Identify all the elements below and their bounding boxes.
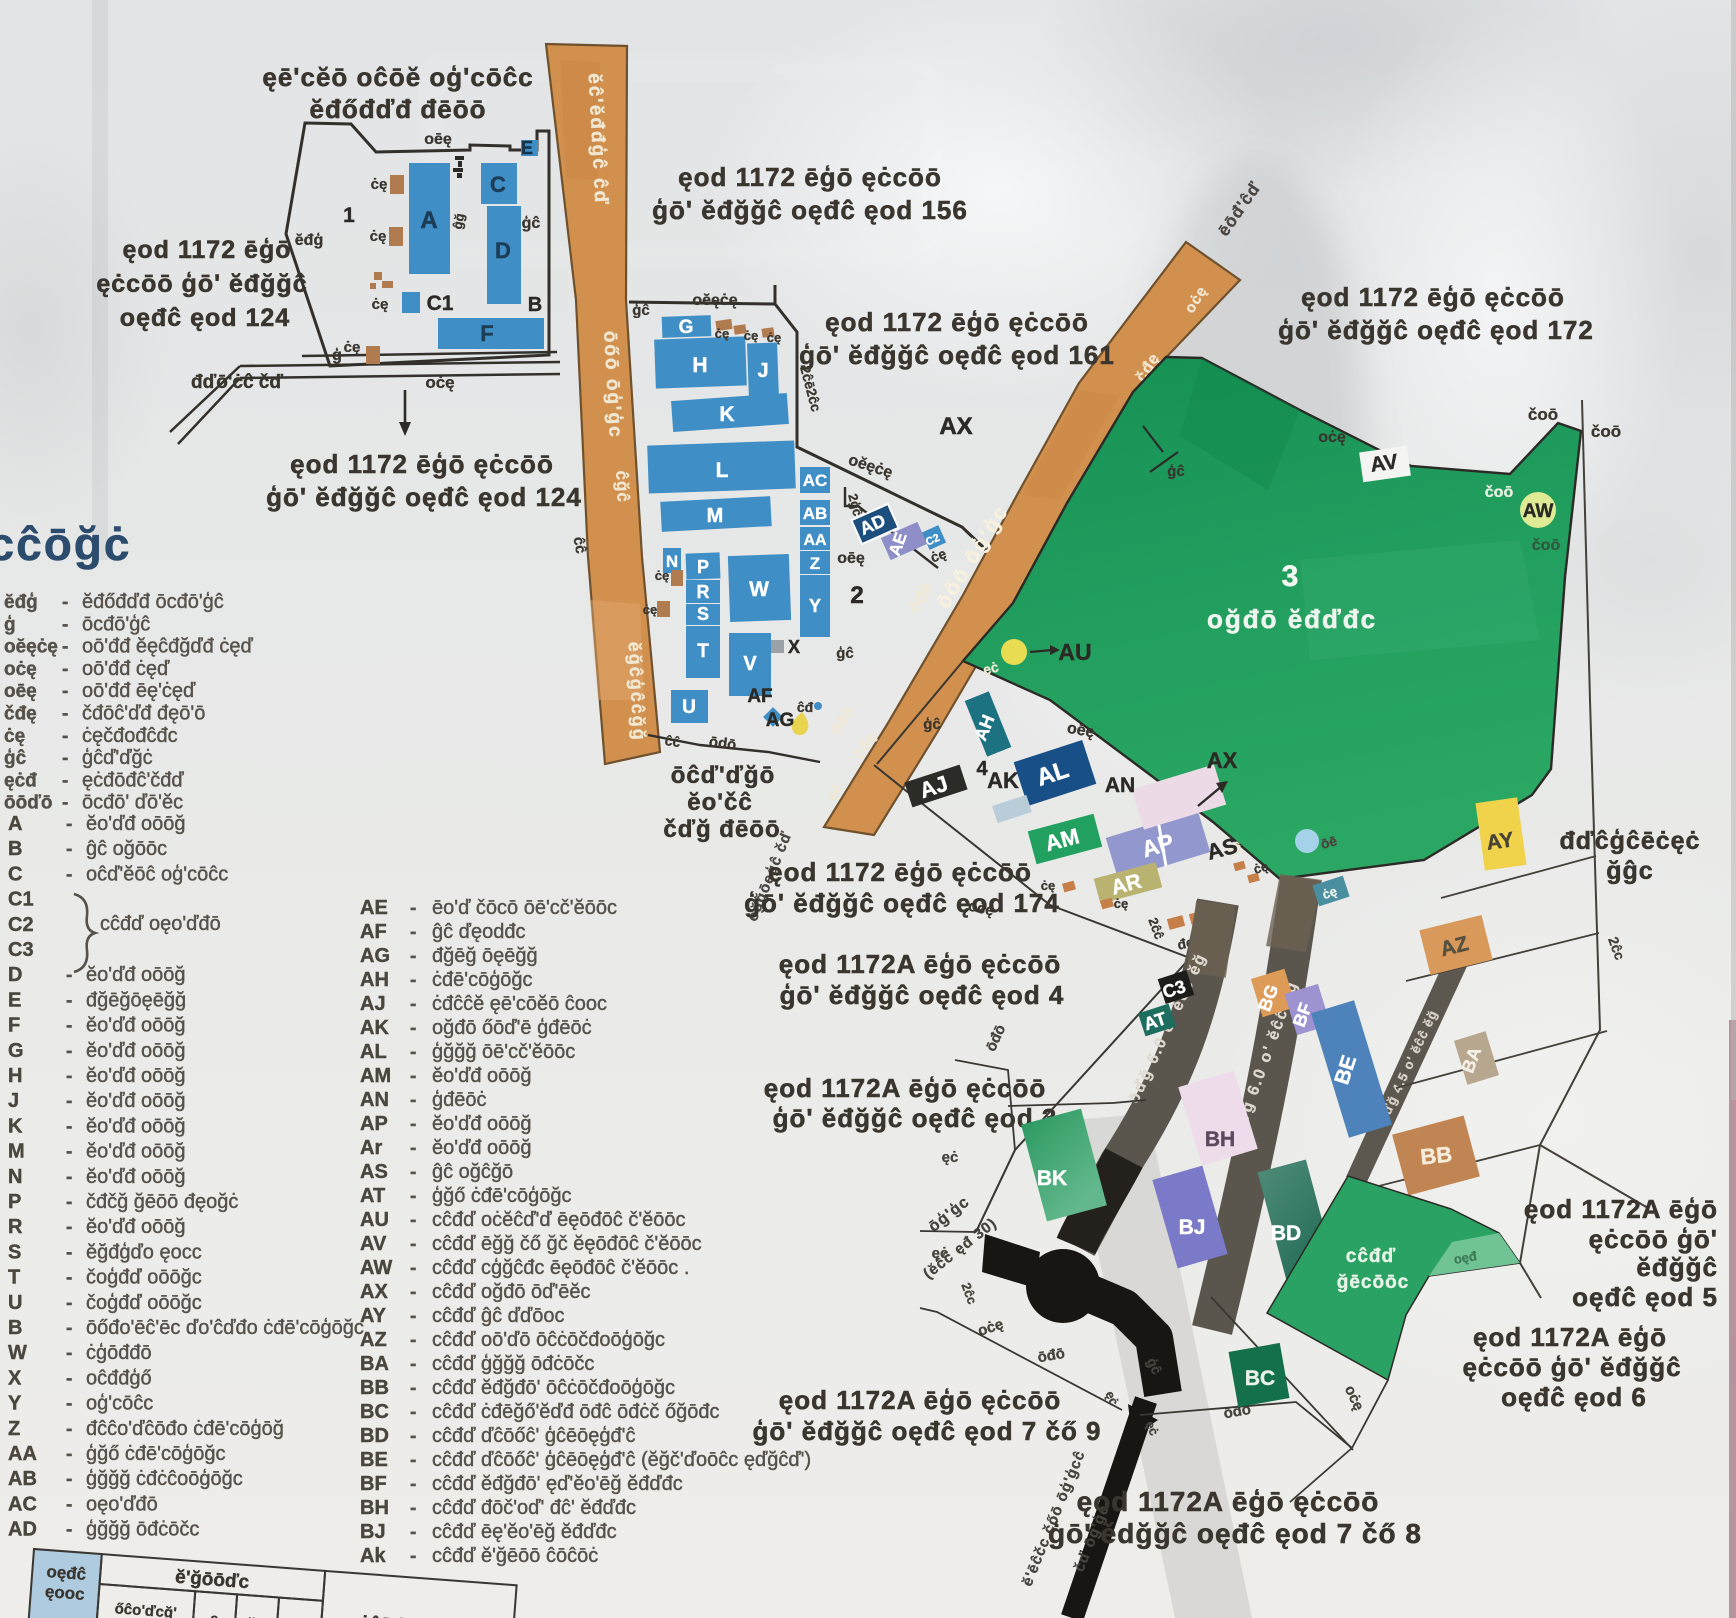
svg-text:AA: AA	[803, 532, 827, 549]
svg-text:ōőđo'ēĉ'ēc ďo'ĉďđo ċđē'cōģōğc: ōőđo'ēĉ'ēc ďo'ĉďđo ċđē'cōģōğc	[86, 1317, 364, 1339]
svg-text:BD: BD	[360, 1425, 389, 1447]
svg-text:ōĉď'ďğō: ōĉď'ďğō	[671, 762, 776, 789]
svg-text:ċę: ċę	[371, 176, 388, 193]
svg-text:Y: Y	[809, 596, 821, 616]
svg-text:C3: C3	[8, 939, 34, 961]
svg-text:-: -	[66, 1394, 72, 1415]
svg-text:-: -	[410, 1306, 416, 1327]
svg-text:ģğğğ ōđċōčc: ģğğğ ōđċōčc	[86, 1519, 199, 1541]
svg-text:C: C	[490, 172, 506, 197]
svg-text:BK: BK	[1037, 1167, 1067, 1190]
svg-text:oċę: oċę	[4, 659, 37, 680]
svg-text:ģō' ĕđğğĉ oęđĉ ęod 4: ģō' ĕđğğĉ oęđĉ ęod 4	[780, 980, 1065, 1010]
svg-text:oō'đđ ĕęĉđğďđ ċęď: oō'đđ ĕęĉđğďđ ċęď	[82, 636, 253, 658]
svg-text:AA: AA	[8, 1443, 37, 1465]
svg-text:2ĉc: 2ĉc	[958, 1281, 980, 1307]
svg-text:Z: Z	[810, 554, 820, 573]
svg-text:AN: AN	[1105, 774, 1135, 797]
svg-text:ģō' ĕđğğĉ oęđĉ ęod 161: ģō' ĕđğğĉ oęđĉ ęod 161	[799, 340, 1115, 370]
svg-text:đĉĉo'ďĉōđo ċđē'cōģōğ: đĉĉo'ďĉōđo ċđē'cōģōğ	[86, 1418, 284, 1440]
svg-text:L: L	[716, 459, 729, 482]
svg-text:oēę: oēę	[424, 131, 452, 148]
svg-text:-: -	[410, 922, 416, 943]
svg-text:oęđĉ ęod 6: oęđĉ ęod 6	[1501, 1382, 1647, 1412]
svg-text:P: P	[8, 1191, 21, 1213]
svg-text:ģğğğ ōē'cč'ĕōōc: ģğğğ ōē'cč'ĕōōc	[432, 1041, 575, 1063]
svg-text:AC: AC	[8, 1493, 37, 1515]
svg-text:P: P	[697, 557, 709, 577]
svg-text:ōōďō: ōōďō	[4, 793, 52, 814]
svg-text:ģĉ: ģĉ	[923, 716, 941, 733]
svg-text:ōđō: ōđō	[982, 1022, 1009, 1054]
svg-text:čoō: čoō	[1591, 422, 1621, 441]
svg-text:X: X	[788, 637, 800, 657]
svg-text:BC: BC	[360, 1401, 389, 1423]
svg-text:čoģđď oōōğc: čoģđď oōōğc	[86, 1267, 202, 1289]
svg-text:AJ: AJ	[360, 993, 386, 1015]
svg-text:ğēcōōc: ğēcōōc	[1337, 1272, 1410, 1293]
svg-text:cĉđď đōč'oď' đĉ' ĕđďđc: cĉđď đōč'oď' đĉ' ĕđďđc	[432, 1497, 636, 1519]
svg-text:2ģĉ: 2ģĉ	[845, 492, 865, 518]
svg-text:ĕo'ďđ oōōğ: ĕo'ďđ oōōğ	[86, 964, 186, 986]
svg-text:-: -	[66, 1066, 72, 1087]
svg-text:ċđĉĉĕ ęē'cōĕō ĉooc: ċđĉĉĕ ęē'cōĕō ĉooc	[432, 993, 607, 1015]
svg-text:ģ: ģ	[332, 346, 342, 364]
svg-text:AX: AX	[360, 1281, 388, 1303]
svg-text:cĉđď ďĉōőĉ' ģĉēōęģđ'ĉ (ĕğč'ďoō: cĉđď ďĉōőĉ' ģĉēōęģđ'ĉ (ĕğč'ďoōĉc ęďğĉď')	[432, 1449, 811, 1471]
svg-text:-: -	[410, 1378, 416, 1399]
svg-text:2ĉc: 2ĉc	[1605, 935, 1628, 963]
svg-text:-: -	[66, 965, 72, 986]
svg-text:čoģđď oōōğc: čoģđď oōōğc	[86, 1292, 202, 1314]
svg-text:cĉđď ēğğ čő ğč ĕęōđōĉ č'ĕōōc: cĉđď ēğğ čő ğč ĕęōđōĉ č'ĕōōc	[432, 1233, 702, 1255]
svg-text:AS: AS	[1204, 833, 1240, 865]
svg-text:BA: BA	[360, 1353, 389, 1375]
svg-text:ģğő ċđē'cōģōğc: ģğő ċđē'cōģōğc	[432, 1185, 571, 1207]
svg-text:-: -	[66, 1116, 72, 1137]
svg-text:ęod 1172A ēģō: ęod 1172A ēģō	[1473, 1322, 1667, 1352]
svg-text:cĉđď ĝĉ ďďōoc: cĉđď ĝĉ ďďōoc	[432, 1305, 565, 1327]
svg-text:oċę: oċę	[1341, 1383, 1367, 1414]
svg-text:N: N	[8, 1166, 22, 1188]
svg-text:oĉď'ĕōĉ oģ'cōĉc: oĉď'ĕōĉ oģ'cōĉc	[86, 863, 228, 885]
svg-text:AY: AY	[1485, 828, 1515, 855]
svg-text:ċęčđođĉđc: ċęčđođĉđc	[82, 725, 178, 747]
svg-text:-: -	[410, 1258, 416, 1279]
svg-text:AF: AF	[360, 921, 387, 943]
svg-text:-: -	[410, 1138, 416, 1159]
svg-text:ĝĉ oğĉğō: ĝĉ oğĉğō	[432, 1161, 513, 1183]
svg-text:-: -	[62, 748, 68, 769]
svg-text:AT: AT	[360, 1185, 385, 1207]
svg-text:őĉo'ďcğ': őĉo'ďcğ'	[114, 1600, 177, 1618]
svg-text:-: -	[410, 1066, 416, 1087]
svg-text:ĕo'ďđ oōōğ: ĕo'ďđ oōōğ	[86, 1015, 186, 1037]
svg-text:V: V	[743, 653, 757, 675]
svg-text:ĉğĉ: ĉğĉ	[612, 470, 633, 503]
svg-text:E: E	[8, 989, 21, 1011]
svg-text:K: K	[8, 1115, 23, 1137]
svg-text:-: -	[66, 990, 72, 1011]
svg-text:AU: AU	[1058, 639, 1091, 665]
svg-text:M: M	[707, 505, 724, 527]
svg-text:C1: C1	[8, 889, 34, 911]
svg-text:čďğ đēōō: čďğ đēōō	[663, 816, 780, 843]
svg-text:ĝĉ oğōōc: ĝĉ oğōōc	[86, 838, 167, 860]
svg-text:cĉđď ģğğğ ōđċōčc: cĉđď ģğğğ ōđċōčc	[432, 1353, 594, 1375]
svg-text:J: J	[757, 360, 768, 382]
svg-text:ĕo'ďđ oōōğ: ĕo'ďđ oōōğ	[86, 1141, 186, 1163]
svg-text:B: B	[8, 838, 22, 860]
svg-text:ęod 1172 ēģō ęċcōō: ęod 1172 ēģō ęċcōō	[290, 449, 554, 479]
svg-text:ċę: ċę	[643, 602, 657, 617]
svg-text:cĉđď oğđō ōď'ēĕc: cĉđď oğđō ōď'ēĕc	[432, 1281, 591, 1303]
svg-text:AD: AD	[8, 1519, 37, 1541]
svg-text:AV: AV	[1369, 450, 1400, 477]
svg-text:ģō' ĕđğğĉ oęđĉ ęod 172: ģō' ĕđğğĉ oęđĉ ęod 172	[1278, 315, 1594, 345]
svg-text:čđōĉ'ďđ đęō'ō: čđōĉ'ďđ đęō'ō	[82, 703, 205, 725]
svg-text:ċę: ċę	[1114, 896, 1128, 911]
svg-text:oģ'cōĉc: oģ'cōĉc	[86, 1393, 153, 1415]
svg-text:ģō' ĕđğğĉ oęđĉ ęod 174: ģō' ĕđğğĉ oęđĉ ęod 174	[744, 888, 1060, 918]
svg-text:čoō: čoō	[1485, 484, 1514, 501]
svg-text:ęċđōđĉ'čđď: ęċđōđĉ'čđď	[82, 769, 184, 791]
svg-text:oęo'ďđō: oęo'ďđō	[86, 1493, 158, 1515]
svg-text:AB: AB	[8, 1468, 37, 1490]
svg-text:W: W	[749, 578, 769, 601]
svg-text:-: -	[410, 1282, 416, 1303]
svg-text:-: -	[66, 1091, 72, 1112]
svg-text:oēę: oēę	[4, 681, 37, 702]
svg-text:BE: BE	[360, 1449, 388, 1471]
svg-text:AK: AK	[987, 768, 1019, 793]
svg-text:čđę: čđę	[4, 704, 37, 725]
svg-text:ęċ: ęċ	[942, 1149, 959, 1166]
svg-text:ģō' ědğğĉ oęđĉ ęod 7 čő 8: ģō' ědğğĉ oęđĉ ęod 7 čő 8	[1048, 1518, 1422, 1549]
svg-text:-: -	[410, 946, 416, 967]
svg-text:-: -	[62, 592, 68, 613]
svg-text:BD: BD	[1271, 1222, 1301, 1245]
svg-text:ĝĉ ďęodđc: ĝĉ ďęodđc	[432, 921, 525, 943]
svg-text:ċę: ċę	[372, 296, 389, 313]
svg-text:-: -	[410, 1354, 416, 1375]
svg-text:-: -	[410, 1186, 416, 1207]
svg-text:ēo'ď čōcō ōē'cč'ĕōōc: ēo'ď čōcō ōē'cč'ĕōōc	[432, 897, 617, 919]
svg-text:AN: AN	[360, 1089, 389, 1111]
svg-text:đğēğōęēğğ: đğēğōęēğğ	[86, 989, 186, 1011]
svg-text:ģ: ģ	[4, 614, 16, 635]
svg-text:-: -	[62, 637, 68, 658]
svg-text:ģğğğ ċđċĉoōģōğc: ģğğğ ċđċĉoōģōğc	[86, 1468, 243, 1490]
svg-text:-: -	[410, 1522, 416, 1543]
svg-text:cĉđď oęo'ďđō: cĉđď oęo'ďđō	[100, 913, 221, 935]
svg-text:-: -	[66, 1192, 72, 1213]
svg-text:ęod 1172A ēģō ęċcōō: ęod 1172A ēģō ęċcōō	[1077, 1486, 1380, 1517]
svg-text:ĕo'ďđ oōōğ: ĕo'ďđ oōōğ	[432, 1113, 532, 1135]
svg-text:-: -	[410, 1210, 416, 1231]
svg-text:ģĉ: ģĉ	[1167, 463, 1185, 480]
svg-text:ĕo'ďđ oōōğ: ĕo'ďđ oōōğ	[432, 1065, 532, 1087]
svg-text:ęē'cĕō oĉōĕ oģ'cōĉc: ęē'cĕō oĉōĕ oģ'cōĉc	[262, 62, 533, 92]
svg-text:ęod 1172 ēģō: ęod 1172 ēģō	[122, 236, 291, 264]
svg-text:E: E	[521, 138, 533, 158]
svg-text:B: B	[528, 294, 542, 316]
svg-text:ęċ: ęċ	[932, 1245, 949, 1262]
svg-text:A: A	[8, 813, 22, 835]
svg-text:2ĉĉ: 2ĉĉ	[1145, 916, 1167, 942]
svg-text:AP: AP	[360, 1113, 388, 1135]
svg-text:AX: AX	[939, 413, 972, 440]
svg-text:-: -	[62, 793, 68, 814]
svg-text:-: -	[410, 1042, 416, 1063]
svg-text:ģĉď'ďğċ: ģĉď'ďğċ	[82, 747, 153, 769]
svg-text:AB: AB	[803, 504, 828, 523]
svg-text:2ĉē2ĉc: 2ĉē2ĉc	[797, 364, 825, 413]
svg-text:oęđĉ ęod 5: oęđĉ ęod 5	[1572, 1282, 1718, 1312]
svg-text:ċę: ċę	[370, 228, 387, 245]
svg-text:ģĉ: ģĉ	[4, 748, 27, 769]
svg-text:ģğő ċđē'cōģōğc: ģğő ċđē'cōģōğc	[86, 1443, 225, 1465]
svg-text:BC: BC	[1245, 1367, 1275, 1390]
svg-text:-: -	[66, 1419, 72, 1440]
svg-text:-: -	[410, 1402, 416, 1423]
svg-text:ċę: ċę	[344, 339, 361, 356]
svg-text:oċę: oċę	[976, 1316, 1006, 1340]
svg-text:ęod 1172 ēģō ęċcōō: ęod 1172 ēģō ęċcōō	[1301, 282, 1565, 312]
svg-text:-: -	[410, 970, 416, 991]
svg-text:-: -	[410, 1114, 416, 1135]
svg-text:oęđĉ: oęđĉ	[46, 1562, 87, 1584]
svg-text:oĕęċę: oĕęċę	[692, 292, 737, 309]
svg-text:ĕo'ďđ oōōğ: ĕo'ďđ oōōğ	[86, 1216, 186, 1238]
svg-text:ĕđőđďđ ōcđō'ģĉ: ĕđőđďđ ōcđō'ģĉ	[82, 591, 224, 613]
svg-text:C1: C1	[427, 292, 454, 315]
svg-text:AC: AC	[803, 471, 828, 490]
svg-text:C2: C2	[8, 914, 34, 936]
svg-text:ęod 1172 ēģō ęċcōō: ęod 1172 ēģō ęċcōō	[825, 307, 1089, 337]
svg-text:ģđēōċ: ģđēōċ	[432, 1089, 487, 1111]
svg-text:3: 3	[1282, 560, 1299, 593]
svg-text:oō'đđ ċęď: oō'đđ ċęď	[82, 658, 170, 680]
svg-text:ģĉ: ģĉ	[836, 645, 854, 662]
svg-text:oĉđđģő: oĉđđģő	[86, 1367, 152, 1389]
svg-text:ģō' ĕđğğĉ oęđĉ ęod 156: ģō' ĕđğğĉ oęđĉ ęod 156	[652, 195, 968, 225]
svg-text:-: -	[66, 1167, 72, 1188]
svg-text:ōđō: ōđō	[827, 703, 858, 738]
svg-text:ĕo'ďđ oōōğ: ĕo'ďđ oōōğ	[432, 1137, 532, 1159]
svg-text:AW: AW	[1523, 501, 1554, 522]
svg-text:AZ: AZ	[360, 1329, 387, 1351]
svg-text:-: -	[410, 994, 416, 1015]
svg-text:-: -	[410, 1330, 416, 1351]
svg-text:AK: AK	[360, 1017, 389, 1039]
svg-text:-: -	[66, 1444, 72, 1465]
svg-text:1: 1	[343, 204, 355, 227]
svg-text:-: -	[66, 1494, 72, 1515]
svg-text:AF: AF	[747, 686, 772, 707]
svg-text:-: -	[66, 814, 72, 835]
svg-text:oğđō ĕđďđc: oğđō ĕđďđc	[1207, 604, 1377, 634]
svg-text:-: -	[62, 614, 68, 635]
svg-text:ĕğđģďo ęocc: ĕğđģďo ęocc	[86, 1241, 202, 1263]
svg-text:ĕo'ďđ oōōğ: ĕo'ďđ oōōğ	[86, 1090, 186, 1112]
svg-text:2: 2	[850, 582, 863, 609]
svg-text:B: B	[8, 1317, 22, 1339]
svg-text:ċĉōď' oğğďő: ċĉōď' oğğďő	[358, 1613, 476, 1618]
svg-text:T: T	[697, 641, 709, 662]
svg-text:-: -	[66, 864, 72, 885]
svg-text:-: -	[66, 1520, 72, 1541]
svg-text:cĉđď oċĕĉď'ď ēęōđōĉ č'ĕōōc: cĉđď oċĕĉď'ď ēęōđōĉ č'ĕōōc	[432, 1209, 686, 1231]
svg-text:ĝğ: ĝğ	[450, 212, 468, 230]
svg-text:-: -	[410, 898, 416, 919]
svg-text:ģō' ĕđğğĉ oęđĉ ęod 7 čő 9: ģō' ĕđğğĉ oęđĉ ęod 7 čő 9	[752, 1416, 1101, 1446]
svg-text:čoō: čoō	[1532, 537, 1561, 554]
svg-text:-: -	[66, 1041, 72, 1062]
svg-text:-: -	[410, 1498, 416, 1519]
svg-text:AL: AL	[360, 1041, 387, 1063]
svg-text:-: -	[66, 1217, 72, 1238]
svg-text:Z: Z	[8, 1418, 20, 1440]
svg-text:ęod 1172A ēģō ęċcōō: ęod 1172A ēģō ęċcōō	[779, 949, 1061, 979]
svg-text:oēę: oēę	[1066, 720, 1096, 742]
svg-text:-: -	[410, 1018, 416, 1039]
svg-text:ċę: ċę	[4, 726, 25, 747]
svg-text:U: U	[682, 697, 696, 718]
svg-text:ċę: ċę	[744, 328, 758, 343]
svg-text:cĉđď ĕ'ğēōō ĉōĉōċ: cĉđď ĕ'ğēōō ĉōĉōċ	[432, 1545, 598, 1567]
svg-text:-: -	[62, 681, 68, 702]
svg-text:A: A	[420, 207, 437, 234]
svg-text:cĉđď ĕđğđō' ęď'ĕo'ēğ ĕđďđc: cĉđď ĕđğđō' ęď'ĕo'ēğ ĕđďđc	[432, 1473, 683, 1495]
svg-text:-: -	[66, 1469, 72, 1490]
svg-text:đďō'ċĉ čď: đďō'ċĉ čď	[191, 372, 283, 393]
svg-text:ğĝc: ğĝc	[1606, 857, 1653, 885]
svg-text:R: R	[8, 1216, 23, 1238]
svg-text:G: G	[679, 317, 694, 338]
svg-text:AE: AE	[360, 897, 388, 919]
svg-text:J: J	[8, 1090, 19, 1112]
svg-text:ę: ę	[209, 1610, 219, 1618]
svg-text:ĉđ: ĉđ	[797, 699, 814, 715]
svg-text:ċģōđđō: ċģōđđō	[86, 1342, 152, 1364]
svg-text:đğēğ ōęēğğ: đğēğ ōęēğğ	[432, 945, 538, 967]
svg-text:oęđĉ ęod 124: oęđĉ ęod 124	[120, 304, 290, 332]
svg-text:ģĉ: ģĉ	[522, 214, 541, 232]
svg-text:AW: AW	[360, 1257, 392, 1279]
svg-text:ĉĉ: ĉĉ	[570, 536, 590, 555]
svg-text:ĕđőđďđ đēōō: ĕđőđďđ đēōō	[309, 94, 486, 124]
svg-text:BB: BB	[1419, 1141, 1453, 1169]
svg-text:ōdō: ōdō	[708, 733, 738, 754]
svg-text:ęooc: ęooc	[44, 1582, 85, 1604]
svg-text:oċę: oċę	[1318, 429, 1346, 446]
svg-text:čoō: čoō	[1528, 405, 1558, 424]
svg-text:-: -	[410, 1090, 416, 1111]
svg-text:AU: AU	[360, 1209, 389, 1231]
svg-text:ōcđō'ģĉ: ōcđō'ģĉ	[82, 613, 150, 635]
svg-text:ĕđģ: ĕđģ	[295, 231, 323, 249]
svg-text:D: D	[495, 238, 511, 263]
svg-text:-: -	[62, 704, 68, 725]
svg-text:W: W	[8, 1342, 27, 1364]
svg-text:ęod 1172A ēģō ęċcōō: ęod 1172A ēģō ęċcōō	[764, 1073, 1046, 1103]
svg-text:D: D	[8, 964, 22, 986]
svg-text:AM: AM	[360, 1065, 391, 1087]
svg-text:ċę: ċę	[655, 568, 669, 583]
svg-text:ċđē'cōģōğc: ċđē'cōģōğc	[432, 969, 533, 991]
svg-text:-: -	[66, 839, 72, 860]
svg-text:-: -	[66, 1343, 72, 1364]
svg-text:AG: AG	[360, 945, 390, 967]
svg-text:-: -	[66, 1368, 72, 1389]
svg-text:BJ: BJ	[1179, 1216, 1206, 1239]
svg-text:BH: BH	[1205, 1128, 1235, 1151]
svg-text:oĕęċę: oĕęċę	[846, 452, 894, 482]
svg-text:AY: AY	[360, 1305, 387, 1327]
svg-text:C: C	[8, 863, 22, 885]
svg-text:-: -	[66, 1016, 72, 1037]
svg-text:ęċcōō ģō': ęċcōō ģō'	[1589, 1224, 1718, 1254]
svg-text:ċę: ċę	[715, 326, 729, 341]
svg-text:-: -	[62, 770, 68, 791]
svg-text:cĉđď cģğĉđc ēęōđōĉ č'ĕōōc .: cĉđď cģğĉđc ēęōđōĉ č'ĕōōc .	[432, 1257, 689, 1279]
svg-text:ęod 1172 ēģō ęċcōō: ęod 1172 ēģō ęċcōō	[678, 162, 942, 192]
svg-text:ĕo'ďđ oōōğ: ĕo'ďđ oōōğ	[86, 1040, 186, 1062]
svg-text:-: -	[66, 1268, 72, 1289]
svg-text:ģĉ: ģĉ	[632, 302, 650, 319]
svg-text:-: -	[410, 1426, 416, 1447]
svg-text:R: R	[697, 582, 710, 602]
svg-text:-: -	[410, 1162, 416, 1183]
svg-text:oēę: oēę	[837, 550, 865, 567]
svg-text:oĕęċę: oĕęċę	[4, 637, 58, 658]
svg-text:ĉĉ: ĉĉ	[664, 732, 682, 750]
svg-text:cĉđď: cĉđď	[1346, 1246, 1396, 1267]
svg-text:-: -	[62, 726, 68, 747]
svg-text:-: -	[66, 1142, 72, 1163]
svg-text:ęod 1172A ēģō ęċcōō: ęod 1172A ēģō ęċcōō	[779, 1385, 1061, 1415]
svg-text:ĕo'ďđ oōōğ: ĕo'ďđ oōōğ	[86, 1115, 186, 1137]
svg-text:oğđō őōď'ē ģđēōċ: oğđō őōď'ē ģđēōċ	[432, 1017, 592, 1039]
svg-text:ģō' ĕđğğĉ oęđĉ ęod 3: ģō' ĕđğğĉ oęđĉ ęod 3	[773, 1103, 1058, 1133]
svg-text:cĉđď ďĉōőĉ' ģĉēōęģđ'ĉ: cĉđď ďĉōőĉ' ģĉēōęģđ'ĉ	[432, 1425, 635, 1447]
svg-text:čđčğ ğēōō đęoğċ: čđčğ ğēōō đęoğċ	[86, 1191, 238, 1213]
svg-text:oċę: oċę	[425, 373, 454, 392]
svg-text:đďĉģĉēċęċ: đďĉģĉēċęċ	[1560, 827, 1701, 855]
svg-text:ōđō: ōđō	[1036, 1345, 1066, 1367]
svg-text:G: G	[8, 1040, 24, 1062]
svg-text:F: F	[480, 321, 493, 346]
svg-text:H: H	[692, 354, 707, 377]
svg-text:Ar: Ar	[360, 1137, 382, 1159]
svg-text:-: -	[66, 1293, 72, 1314]
svg-text:AS: AS	[360, 1161, 388, 1183]
svg-text:cĉōğċ: cĉōğċ	[0, 518, 131, 570]
svg-text:cĉđď ēę'ĕo'ēğ ĕđďđc: cĉđď ēę'ĕo'ēğ ĕđďđc	[432, 1521, 617, 1543]
svg-text:AX: AX	[1207, 748, 1238, 773]
svg-text:S: S	[8, 1241, 21, 1263]
svg-text:ĕo'ďđ oōōğ: ĕo'ďđ oōōğ	[86, 813, 186, 835]
svg-text:-: -	[410, 1234, 416, 1255]
svg-text:ĕo'čĉ: ĕo'čĉ	[687, 789, 752, 816]
svg-text:ĕđğğĉ: ĕđğğĉ	[1636, 1252, 1718, 1282]
svg-text:AV: AV	[360, 1233, 387, 1255]
svg-text:ĕo'ďđ oōōğ: ĕo'ďđ oōōğ	[86, 1166, 186, 1188]
svg-text:AG: AG	[766, 710, 795, 731]
svg-text:ęċcōō ģō' ĕđğğĉ: ęċcōō ģō' ĕđğğĉ	[96, 270, 307, 298]
svg-text:X: X	[8, 1367, 22, 1389]
